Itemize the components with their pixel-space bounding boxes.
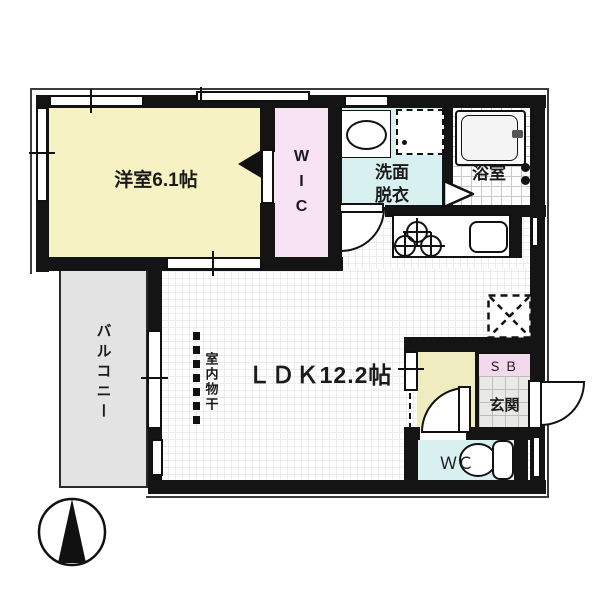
stove-burners-icon: [393, 217, 455, 259]
washroom-door-swing: [338, 203, 388, 255]
outline-bottom: [146, 496, 549, 498]
hall-door-track-dashed: [409, 393, 411, 429]
bathtub-handle: [512, 130, 523, 138]
compass-north-icon: [34, 494, 112, 572]
indoor-drying-label: 室内物干: [201, 340, 221, 424]
bedroom-ldk-sliding-door: [166, 257, 262, 270]
outline-right: [547, 88, 549, 498]
window-tick: [90, 89, 92, 113]
balcony-sliding-window: [147, 330, 162, 429]
window-tick: [141, 377, 168, 379]
kitchen-sink: [469, 221, 508, 253]
window-tick: [200, 87, 202, 106]
wall-bedroom-wic-upper: [260, 95, 275, 152]
window-tick: [212, 251, 214, 276]
front-door-swing: [528, 377, 588, 429]
outline-left: [30, 88, 32, 274]
wc-label: ＷＣ: [428, 450, 486, 472]
wic-label: WIC: [289, 133, 313, 237]
kitchen-side-window: [531, 216, 539, 247]
outline-top: [30, 88, 549, 90]
wall-bottom: [148, 480, 546, 494]
bedroom-label: 洋室6.1帖: [56, 165, 256, 191]
entrance-label: 玄関: [477, 382, 532, 426]
bedroom-left-window: [36, 107, 48, 202]
ldk-small-window: [151, 439, 163, 476]
wall-kitchen-right: [510, 213, 522, 258]
wall-wc-left: [404, 427, 418, 494]
refrigerator-space-icon: [486, 293, 533, 340]
washroom-label-2: 脱衣: [345, 181, 439, 205]
shoebox-label: ＳＢ: [477, 352, 532, 378]
washing-machine-pan: [396, 109, 444, 155]
wc-door-swing: [419, 386, 471, 434]
window-tick: [29, 152, 55, 154]
balcony-label: バルコニー: [91, 308, 115, 438]
bedroom-top-window: [49, 95, 144, 107]
washbasin-bowl: [346, 120, 387, 150]
washroom-top-window: [344, 95, 389, 107]
floor-plan: 洋室6.1帖 WIC 洗面 脱衣 浴室 ＬＤＫ12.2帖 室内物干 バルコニー …: [0, 0, 600, 600]
washroom-label-1: 洗面: [345, 158, 439, 182]
bathtub: [461, 115, 518, 161]
bathroom-label: 浴室: [450, 160, 528, 183]
top-high-window: [196, 91, 310, 102]
wall-bedroom-wic-lower: [260, 203, 275, 271]
washer-drain-dot: [402, 140, 407, 145]
wc-side-window: [532, 436, 541, 478]
ldk-label: ＬＤＫ12.2帖: [180, 359, 460, 387]
